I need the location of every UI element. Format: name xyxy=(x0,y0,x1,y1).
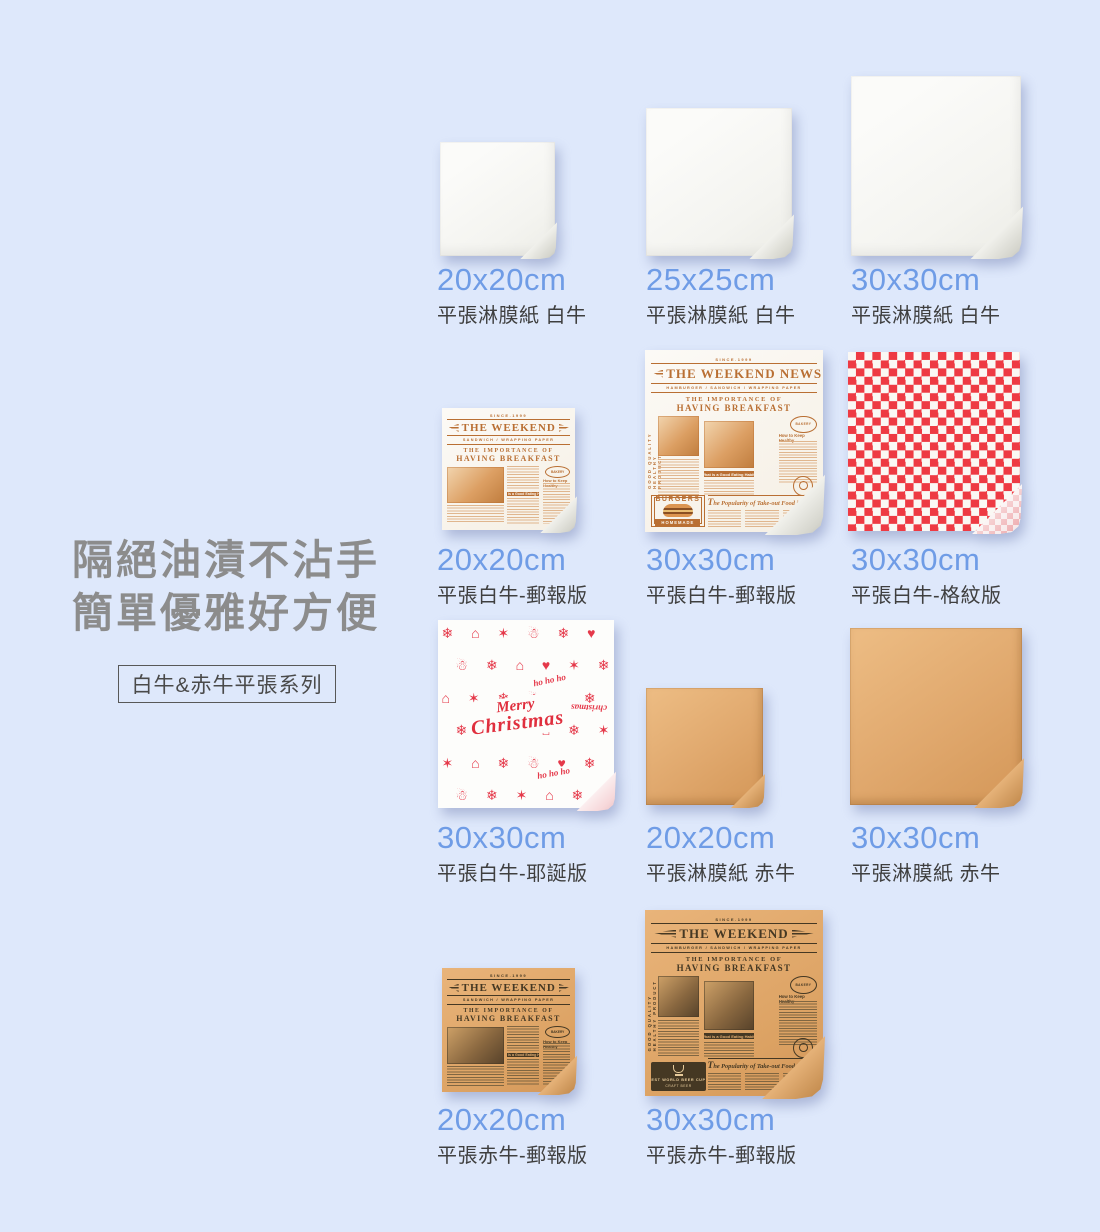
plate-photo xyxy=(704,981,754,1029)
product-desc-label: 平張白牛-耶誕版 xyxy=(437,857,588,886)
newspaper-body: What is a Good Eating Habit? BAKERY How … xyxy=(447,466,571,526)
newspaper-headline: THE IMPORTANCE OF HAVING BREAKFAST xyxy=(651,956,817,973)
newspaper-headline: THE IMPORTANCE OF HAVING BREAKFAST xyxy=(447,1008,571,1023)
product-desc-label: 平張赤牛-郵報版 xyxy=(437,1139,588,1168)
trophy-icon xyxy=(673,1065,684,1073)
breakfast-photo xyxy=(447,467,504,503)
product-desc-label: 平張淋膜紙 赤牛 xyxy=(646,857,796,886)
product-desc-label: 平張白牛-格紋版 xyxy=(851,579,1002,608)
product-size-label: 20x20cm xyxy=(437,262,566,298)
wing-icon xyxy=(653,370,663,378)
product-image-white-20x20 xyxy=(440,142,555,256)
burger-icon xyxy=(663,504,693,517)
paper-sheet xyxy=(646,108,792,256)
product-desc-label: 平張赤牛-郵報版 xyxy=(646,1139,797,1168)
wing-icon xyxy=(449,984,459,992)
bakery-stamp-icon: BAKERY xyxy=(545,1026,571,1039)
text-column xyxy=(447,1066,504,1086)
product-size-label: 20x20cm xyxy=(646,820,775,856)
bakery-stamp-icon: BAKERY xyxy=(790,416,817,434)
text-column xyxy=(447,505,504,524)
product-desc-label: 平張白牛-郵報版 xyxy=(437,579,588,608)
christmas-side-word: christmas xyxy=(571,702,607,713)
product-size-label: 20x20cm xyxy=(437,1102,566,1138)
product-size-label: 30x30cm xyxy=(851,542,980,578)
product-image-newsprint-kraft-30x30: SINCE.1999 THE WEEKEND HAMBURGER / SANDW… xyxy=(645,910,823,1096)
product-desc-label: 平張淋膜紙 白牛 xyxy=(437,299,587,328)
product-image-newsprint-white-30x30: SINCE.1999 THE WEEKEND NEWS HAMBURGER / … xyxy=(645,350,823,532)
newspaper-sheet: SINCE.1999 THE WEEKEND SANDWICH / WRAPPI… xyxy=(442,408,575,530)
intro-headline-line2: 簡單優雅好方便 xyxy=(72,579,380,639)
product-size-label: 20x20cm xyxy=(437,542,566,578)
product-size-label: 30x30cm xyxy=(646,1102,775,1138)
newspaper-since: SINCE.1999 xyxy=(447,973,571,978)
text-column xyxy=(704,480,754,496)
note-bar: What is a Good Eating Habit? xyxy=(704,471,754,477)
product-image-checkered-30x30 xyxy=(848,352,1020,531)
wing-icon xyxy=(559,984,569,992)
side-vertical-text: GOOD QUALITY HEALTHY PRODUCT xyxy=(647,980,657,1051)
note-bar: What is a Good Eating Habit? xyxy=(507,492,539,496)
text-column xyxy=(658,459,699,496)
product-image-newsprint-white-20x20: SINCE.1999 THE WEEKEND SANDWICH / WRAPPI… xyxy=(442,408,575,530)
newspaper-headline: THE IMPORTANCE OF HAVING BREAKFAST xyxy=(651,396,817,413)
product-desc-label: 平張白牛-郵報版 xyxy=(646,579,797,608)
text-column xyxy=(658,1020,699,1058)
breakfast-photo xyxy=(658,976,699,1017)
burgers-badge: BURGERS HOMEMADE xyxy=(651,495,704,527)
paper-sheet xyxy=(440,142,555,256)
product-size-label: 30x30cm xyxy=(851,820,980,856)
series-badge: 白牛&赤牛平張系列 xyxy=(118,665,336,703)
product-size-label: 25x25cm xyxy=(646,262,775,298)
text-column xyxy=(704,1042,754,1058)
newspaper-subtitle: SANDWICH / WRAPPING PAPER xyxy=(447,996,571,1005)
trophy-badge: EST WORLD BEER CUP CRAFT BEER xyxy=(651,1062,706,1091)
newspaper-subtitle: HAMBURGER / SANDWICH / WRAPPING PAPER xyxy=(651,944,817,953)
newspaper-masthead: THE WEEKEND xyxy=(651,923,817,944)
product-image-white-30x30 xyxy=(851,76,1021,256)
wing-icon xyxy=(792,930,815,938)
newspaper-since: SINCE.1999 xyxy=(651,357,817,362)
product-image-newsprint-kraft-20x20: SINCE.1999 THE WEEKEND SANDWICH / WRAPPI… xyxy=(442,968,575,1092)
note-bar: What is a Good Eating Habit? xyxy=(507,1053,539,1057)
newspaper-masthead: THE WEEKEND xyxy=(447,979,571,996)
newspaper-sheet: SINCE.1999 THE WEEKEND SANDWICH / WRAPPI… xyxy=(442,968,575,1092)
bakery-stamp-icon: BAKERY xyxy=(545,466,571,478)
product-size-label: 30x30cm xyxy=(437,820,566,856)
paper-sheet xyxy=(848,352,1020,531)
text-column xyxy=(507,466,539,490)
product-desc-label: 平張淋膜紙 白牛 xyxy=(851,299,1001,328)
product-desc-label: 平張淋膜紙 白牛 xyxy=(646,299,796,328)
donut-photo xyxy=(704,421,754,468)
newspaper-since: SINCE.1999 xyxy=(447,413,571,418)
note-bar: What is a Good Eating Habit? xyxy=(704,1033,754,1039)
wing-icon xyxy=(653,930,676,938)
text-column xyxy=(507,1026,539,1051)
paper-sheet xyxy=(850,628,1022,805)
product-image-christmas-30x30: ❄ ⌂ ✶ ☃ ❄ ♥ ⌂ ☃ ❄ ⌂ ♥ ✶ ❄ ☃ ⌂ ✶ ❄ ☃ ⌂ ❄ … xyxy=(438,620,614,808)
wing-icon xyxy=(449,424,459,432)
intro-headline-line1: 隔絕油漬不沾手 xyxy=(72,526,380,586)
product-image-kraft-30x30 xyxy=(850,628,1022,805)
breakfast-photo xyxy=(447,1027,504,1064)
newspaper-subtitle: SANDWICH / WRAPPING PAPER xyxy=(447,436,571,445)
text-column xyxy=(507,498,539,524)
text-column xyxy=(507,1059,539,1086)
stamp-icon: BAKERY xyxy=(790,976,817,994)
promo-section: 隔絕油漬不沾手 簡單優雅好方便 白牛&赤牛平張系列 20x20cm 平張淋膜紙 … xyxy=(0,0,1100,1232)
newspaper-since: SINCE.1999 xyxy=(651,917,817,922)
product-size-label: 30x30cm xyxy=(646,542,775,578)
newspaper-masthead: THE WEEKEND xyxy=(447,419,571,436)
paper-sheet xyxy=(646,688,763,805)
wing-icon xyxy=(559,424,569,432)
christmas-sheet: ❄ ⌂ ✶ ☃ ❄ ♥ ⌂ ☃ ❄ ⌂ ♥ ✶ ❄ ☃ ⌂ ✶ ❄ ☃ ⌂ ❄ … xyxy=(438,620,614,808)
newspaper-masthead: THE WEEKEND NEWS xyxy=(651,363,817,384)
newspaper-headline: THE IMPORTANCE OF HAVING BREAKFAST xyxy=(447,448,571,463)
paper-sheet xyxy=(851,76,1021,256)
product-size-label: 30x30cm xyxy=(851,262,980,298)
product-image-white-25x25 xyxy=(646,108,792,256)
product-desc-label: 平張淋膜紙 赤牛 xyxy=(851,857,1001,886)
newspaper-body: What is a Good Eating Habit? BAKERY How … xyxy=(447,1026,571,1088)
product-image-kraft-20x20 xyxy=(646,688,763,805)
newspaper-subtitle: HAMBURGER / SANDWICH / WRAPPING PAPER xyxy=(651,384,817,393)
breakfast-photo xyxy=(658,416,699,456)
